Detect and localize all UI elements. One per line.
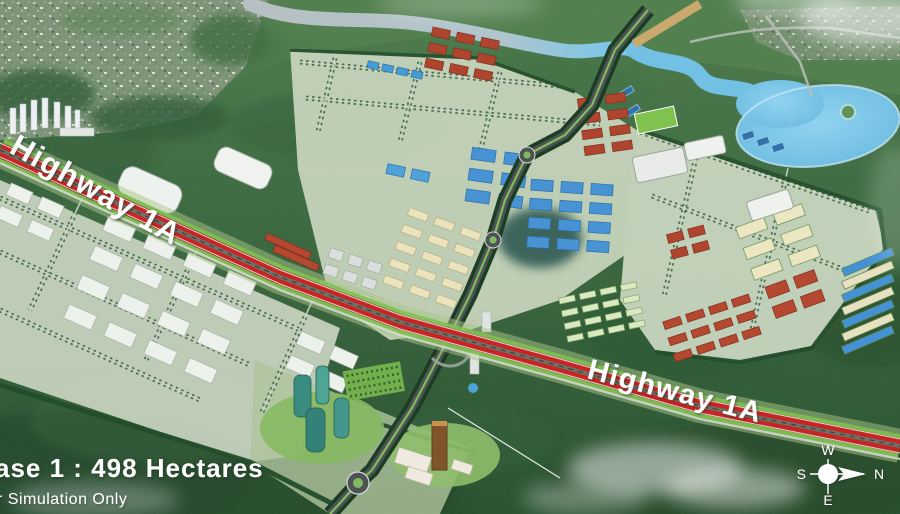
- masterplan-scene: Highway 1A Highway 1A W E S N ase 1 : 49…: [0, 0, 900, 514]
- masterplan-render: Highway 1A Highway 1A W E S N ase 1 : 49…: [0, 0, 900, 514]
- grain-overlay: [0, 0, 900, 514]
